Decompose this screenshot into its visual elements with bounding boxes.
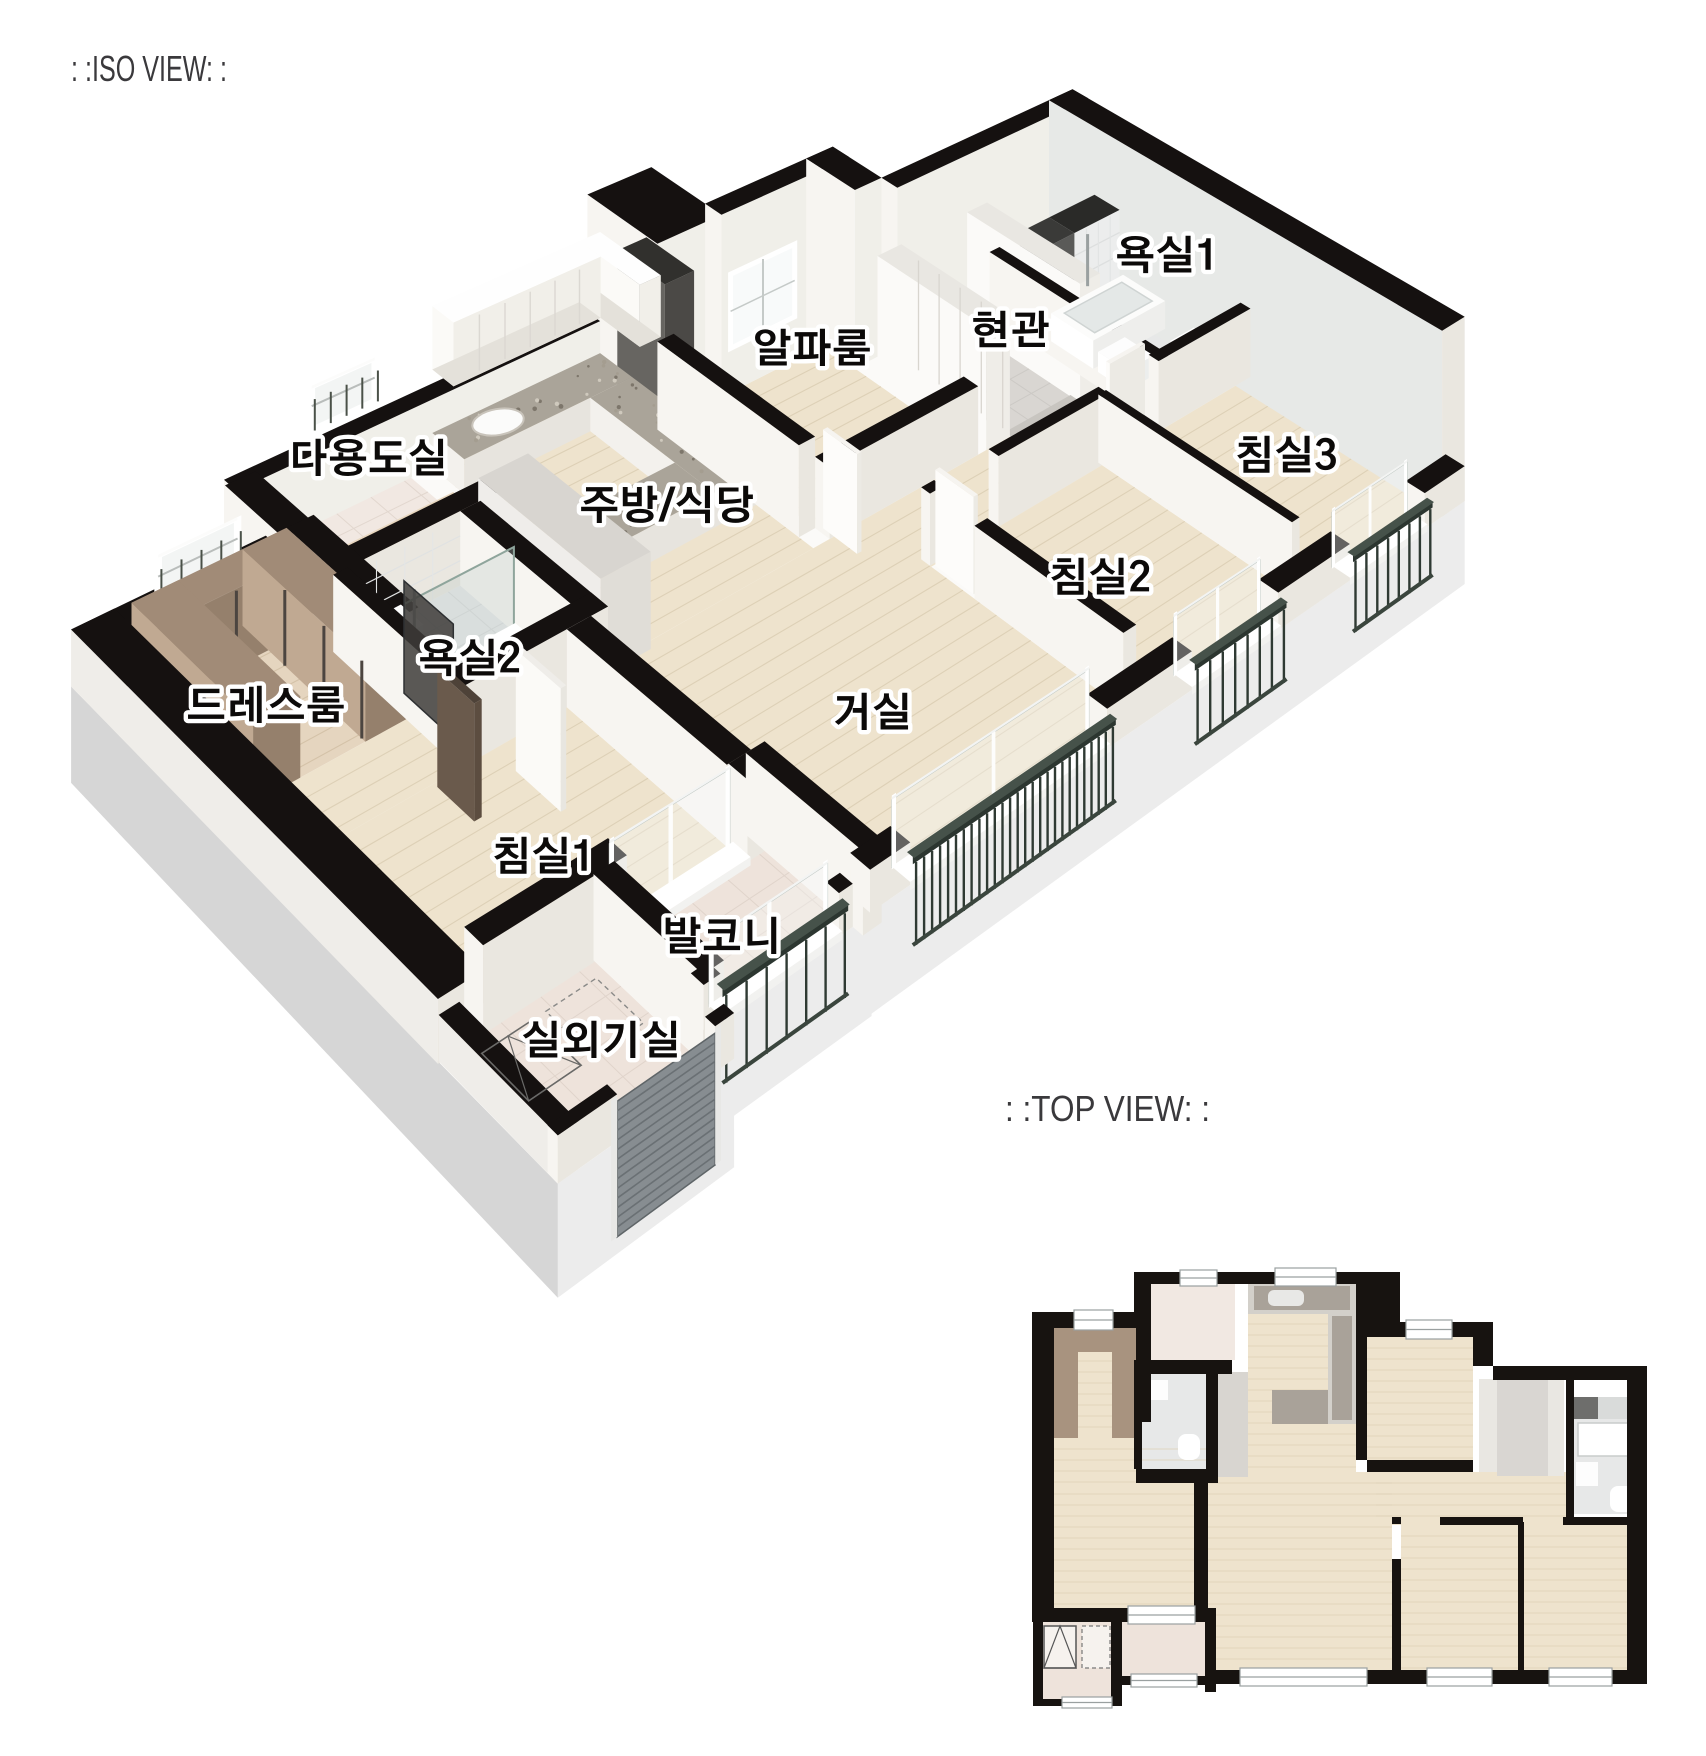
svg-text:: :TOP VIEW: :: : :TOP VIEW: :	[1005, 1088, 1210, 1129]
svg-text:: :ISO VIEW: :: : :ISO VIEW: :	[71, 48, 227, 89]
